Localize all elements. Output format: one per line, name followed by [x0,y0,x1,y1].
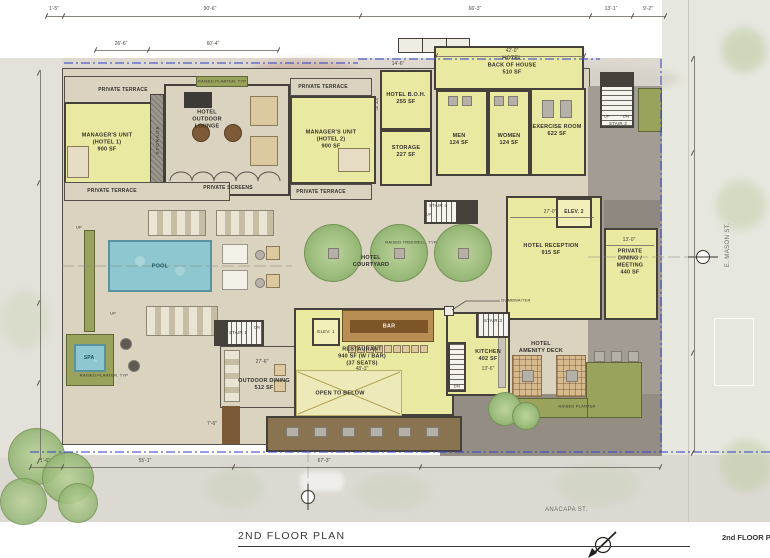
deck-chair [594,351,605,362]
context-tree [205,468,263,508]
cabana [222,270,248,290]
label-dn: DN [254,325,260,330]
side-table [255,278,265,288]
label-hotel-back-of-house: HOTEL BACK OF HOUSE 510 SF [488,56,537,77]
side-table [255,250,265,260]
label-exercise-room: EXERCISE ROOM 622 SF [532,124,581,138]
stair-2-landing [600,72,634,87]
lounge-tv [184,92,212,108]
lounge-sofa [250,136,278,166]
deck-chair [611,351,622,362]
label-elev-2: ELEV. 2 [564,209,584,215]
restroom-fixture [494,96,504,106]
label-private-screens: PRIVATE SCREENS [203,185,253,191]
raised-planter-ne [638,88,662,132]
context-tree [720,440,770,492]
paving-dark-patch [604,200,660,228]
bed [338,148,370,172]
lounge-table [224,124,242,142]
label-dn: DN [454,384,460,389]
restroom-fixture [448,96,458,106]
label-hotel-boh: HOTEL B.O.H. 255 SF [386,92,425,106]
patio-table [120,338,132,350]
label-open-to-below: OPEN TO BELOW [315,391,364,398]
label-men: MEN 124 SF [450,133,469,147]
label-hotel-courtyard: HOTEL COURTYARD [353,255,389,269]
dim-line-bottom [30,467,660,468]
chaise-lounges [146,306,218,336]
dim-line-top2 [95,50,278,51]
label-elev-1: ELEV. 1 [317,329,335,335]
restroom-fixture [508,96,518,106]
label-private-dining: PRIVATE DINING / MEETING 440 SF [617,248,643,276]
label-stair-2: STAIR 2 [609,121,627,127]
context-tree [722,28,766,72]
pergola-table [522,370,534,382]
plan-title: 2ND FLOOR PLAN [238,530,345,542]
label-raised-planter-typ: RAISED PLANTER, TYP [198,79,246,84]
sheet-corner-title: 2nd FLOOR PL [722,533,770,542]
title-underline [238,546,690,547]
terrace-table [426,427,439,437]
dim-text: 27'-0" [544,209,557,215]
dim-text: 1'-6" [40,458,50,464]
patio-table [128,360,140,372]
dim-text: 7'-6" [207,421,217,427]
dim-tick [277,47,280,53]
street-label-anacapa: ANACAPA ST. [545,507,588,513]
context-parking-stall [714,318,754,386]
label-stair-4: STAIR 4 [429,203,447,209]
dim-text: 42'-0" [506,48,519,54]
label-hotel-outdoor-lounge: HOTEL OUTDOOR LOUNGE [192,110,222,131]
deck-tree [512,402,540,430]
pool-planter-west [84,230,95,332]
label-raised-treewell: RAISED TREEWELL, TYP [385,240,436,245]
label-women: WOMEN 124 SF [498,133,521,147]
context-tree [555,462,640,507]
context-left-strip [0,58,62,458]
terrace-table [370,427,383,437]
treewell-center [458,248,469,259]
label-hotel-amenity-deck: HOTEL AMENITY DECK [519,341,563,355]
bar-stool [402,345,410,353]
label-hotel-reception: HOTEL RECEPTION 915 SF [523,243,578,257]
deck-chair [266,246,280,260]
dim-text: 13'-0" [623,237,636,243]
label-up: UP [426,212,432,217]
stair-3 [476,312,510,338]
label-raised-planter: RAISED PLANTER [558,404,595,409]
dim-text: 60'-4" [207,41,220,47]
lounge-sofa [250,96,278,126]
exercise-equipment [560,100,572,118]
floor-plan-sheet: PRIVATE TERRACE MANAGER'S UNIT (HOTEL 1)… [0,0,770,558]
dim-text: 14'-6" [392,61,405,67]
bar-stool [420,345,428,353]
dining-chair [274,364,286,376]
chaise-lounges [148,210,206,236]
label-stair-3: STAIR 3 [484,318,502,324]
label-up: UP [604,114,610,119]
dim-line-dining [606,245,654,246]
label-private-terrace: PRIVATE TERRACE [98,87,147,93]
dim-text: 48'-3" [356,366,369,372]
terrace-table [398,427,411,437]
deck-chair [628,351,639,362]
treewell-center [394,248,405,259]
label-private-terrace: PRIVATE TERRACE [87,188,136,194]
stair-1-landing [214,320,228,346]
planter-wall [222,406,240,444]
terrace-table [342,427,355,437]
pergola-table [566,370,578,382]
bar-stool [411,345,419,353]
dim-text: 27'-6" [256,359,269,365]
label-up: UP [110,311,116,316]
dim-text: 67'-3" [318,458,331,464]
dim-text: 66'-3" [469,6,482,12]
stair-4-landing [456,200,478,224]
terrace-table [314,427,327,437]
dim-line-boh [436,56,584,57]
cabana [222,244,248,264]
label-managers-unit-2: MANAGER'S UNIT (HOTEL 2) 900 SF [306,130,357,151]
dim-text: 22'-3" [372,98,378,111]
dim-text: 13'-6" [482,366,495,372]
label-storage-shaft: STORAGE [155,126,161,155]
label-stair-1: STAIR 1 [229,330,247,336]
dim-text: 55'-1" [139,458,152,464]
dim-text: 26'-6" [115,41,128,47]
terrace-table [286,427,299,437]
deck-chair [266,274,280,288]
bar-stool [393,345,401,353]
dim-line-left [40,70,41,460]
label-bar: BAR [383,323,396,330]
label-dumbwaiter: DUMBWAITER [501,298,530,303]
label-restaurant: RESTAURANT 940 SF (W / BAR) (37 SEATS) [338,347,386,368]
chaise-lounges [216,210,274,236]
label-raised-planter-typ: RAISED PLANTER, TYP [80,373,128,378]
context-curb-line [688,0,689,522]
context-tree [716,180,766,230]
north-arrow-icon [588,532,616,558]
street-label-mason: E. MASON ST. [725,223,731,267]
dim-line-top [46,16,666,17]
label-private-terrace: PRIVATE TERRACE [296,189,345,195]
label-private-terrace: PRIVATE TERRACE [298,84,347,90]
context-tree [355,472,430,512]
label-storage: STORAGE 227 SF [392,145,421,159]
outdoor-sofas [224,350,240,402]
dim-text: 13'-1" [605,6,618,12]
exercise-equipment [542,100,554,118]
dim-line-right [694,56,695,452]
label-dn: DN [623,114,629,119]
street-tree [0,478,47,525]
label-managers-unit-1: MANAGER'S UNIT (HOTEL 1) 900 SF [82,133,133,154]
dim-text: 90'-6" [204,6,217,12]
street-tree [58,483,98,523]
label-spa: SPA [84,355,95,361]
label-pool: POOL [152,264,168,271]
label-outdoor-dining: OUTDOOR DINING 512 SF [238,378,290,392]
restroom-fixture [462,96,472,106]
raised-planter-se [586,362,642,418]
dim-line-reception [510,217,594,218]
label-kitchen: KITCHEN 402 SF [475,349,501,363]
treewell-center [328,248,339,259]
context-tree [0,290,50,350]
dumbwaiter-box [444,306,454,316]
context-car [300,472,344,491]
label-up: UP [76,225,82,230]
dim-text: 1'-5" [49,6,59,12]
dim-text: 9'-2" [643,6,653,12]
